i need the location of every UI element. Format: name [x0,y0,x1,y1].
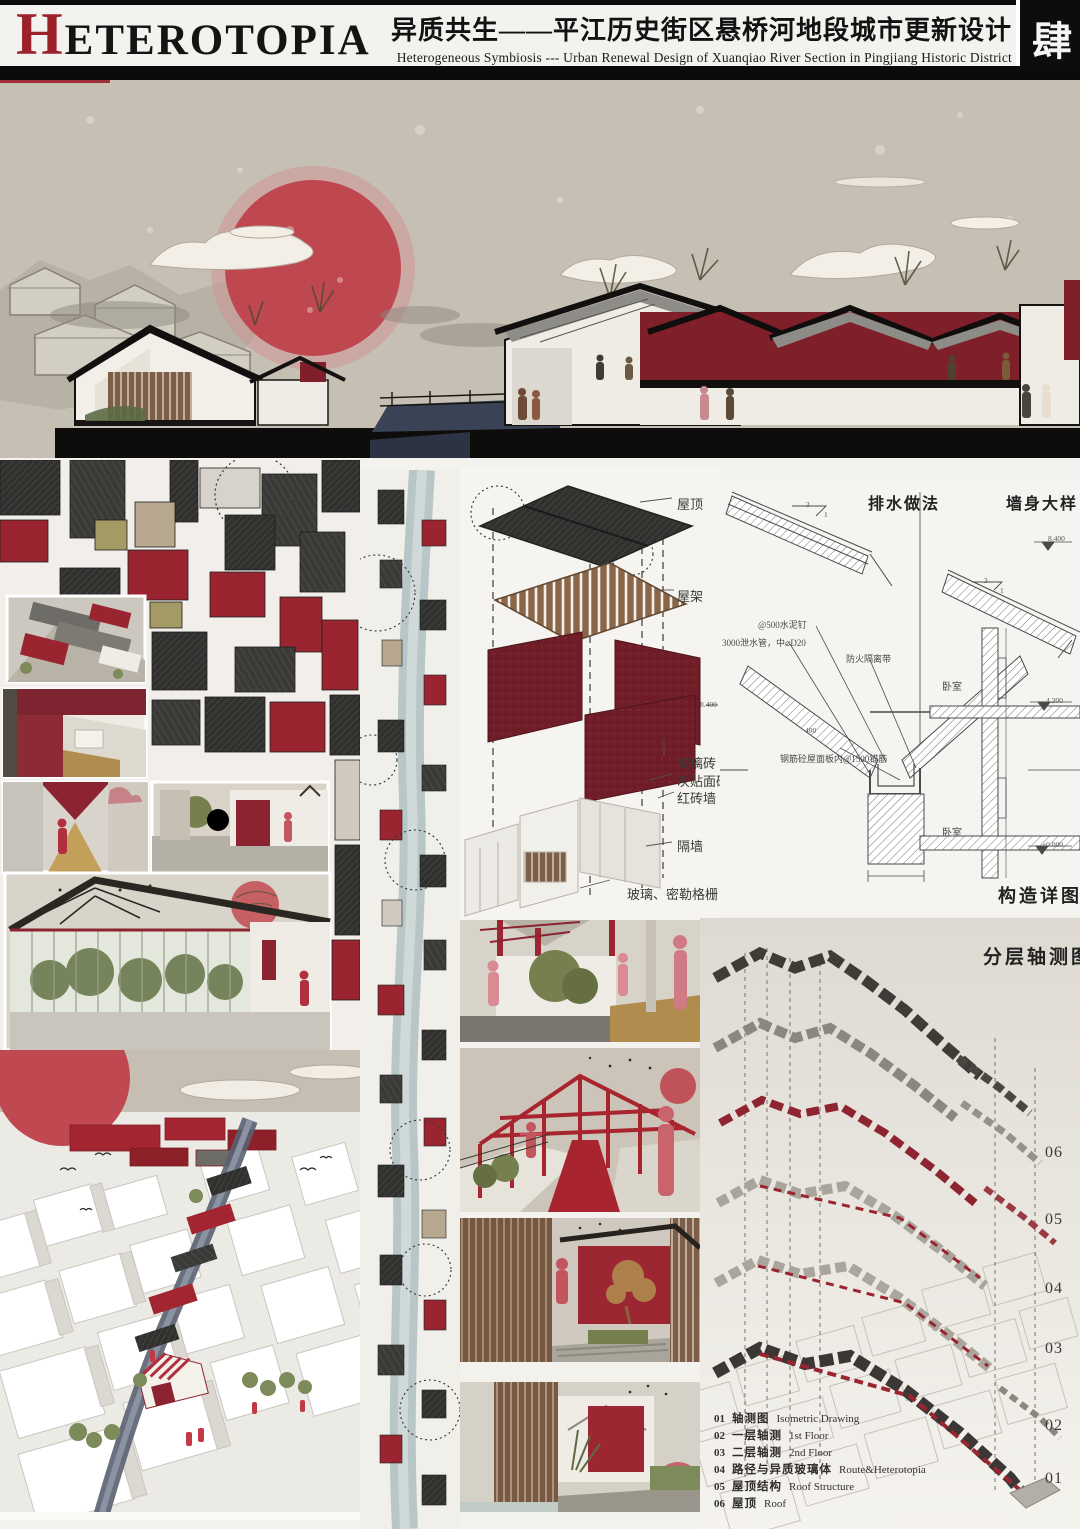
legend-cn: 一层轴测 [732,1427,782,1443]
label-partition: 隔墙 [677,836,703,855]
header-bottom-rule [0,66,1080,80]
layer-number-05: 05 [1045,1211,1063,1229]
label-glass-grille: 玻璃、密勒格栅 [627,884,718,903]
layer-legend: 01 轴测图 Isometric Drawing 02 一层轴测 1st Flo… [714,1410,926,1512]
dim-400: 400 [805,726,816,735]
inset-interior-render [3,782,148,872]
legend-cn: 路径与异质玻璃体 [732,1461,832,1477]
label-roof-frame: 屋架 [677,586,703,605]
legend-num: 02 [714,1430,725,1442]
exploded-elevation-mark: 8.400 [700,700,717,709]
render-pergola [460,1048,710,1212]
legend-row-06: 06 屋顶 Roof [714,1495,926,1512]
legend-en: 2nd Floor [789,1447,832,1459]
slope-mark-b-den: 1 [1000,586,1004,595]
legend-num: 05 [714,1481,725,1493]
legend-row-02: 02 一层轴测 1st Floor [714,1427,926,1444]
inset-courtyard-render [152,782,328,872]
elev-0000: ±0.000 [1042,840,1063,849]
slope-mark-a-den: 1 [824,510,828,519]
ann-anchor-bar: 钢筋砼屋面板内@1500锚筋 [780,752,887,765]
layer-number-06: 06 [1045,1144,1063,1162]
layer-number-02: 02 [1045,1417,1063,1435]
title-chinese: 异质共生——平江历史街区悬桥河地段城市更新设计 [250,10,1012,47]
poster: HETEROTOPIA 异质共生——平江历史街区悬桥河地段城市更新设计 Hete… [0,0,1080,1529]
legend-row-03: 03 二层轴测 2nd Floor [714,1444,926,1461]
wall-detail-title: 墙身大样 [1006,490,1078,514]
drainage-detail-title: 排水做法 [868,490,940,514]
layered-axon-title: 分层轴测图 [983,942,1080,969]
aerial-city-render [0,1050,390,1520]
slope-mark-a-num: 3 [806,500,810,509]
ann-cement-nail: @500水泥钉 [758,618,807,631]
legend-num: 04 [714,1464,725,1476]
elev-4200: 4.200 [1046,696,1063,705]
legend-cn: 二层轴测 [732,1444,782,1460]
label-red-brick-wall: 红砖墙 [677,788,716,807]
axon-plan-collage [0,460,360,1050]
legend-cn: 屋顶结构 [732,1478,782,1494]
render-courtyard [460,920,710,1042]
room-label-2: 卧室 [942,824,962,839]
render-column [460,920,710,1520]
label-glass-brick: 玻璃砖 [677,753,716,772]
construction-details [720,478,1080,915]
legend-row-04: 04 路径与异质玻璃体 Route&Heterotopia [714,1461,926,1478]
ann-fire-belt: 防火隔离带 [846,652,891,665]
page-number-badge: 肆 [1016,0,1080,76]
panorama-section-illustration [0,80,1080,458]
legend-en: Roof Structure [789,1481,854,1493]
legend-en: Isometric Drawing [777,1413,860,1425]
legend-num: 06 [714,1498,725,1510]
legend-en: 1st Floor [789,1430,828,1442]
room-label-1: 卧室 [942,678,962,693]
legend-row-01: 01 轴测图 Isometric Drawing [714,1410,926,1427]
layer-number-01: 01 [1045,1470,1063,1488]
page-number-text: 肆 [1032,9,1072,67]
logo-initial: H [16,4,65,64]
construction-caption: 构造详图 [998,882,1080,908]
label-roof: 屋顶 [677,494,703,513]
legend-num: 03 [714,1447,725,1459]
inset-aerial-render [7,596,145,682]
render-mural-lane [460,1218,710,1362]
header-titles: 异质共生——平江历史街区悬桥河地段城市更新设计 Heterogeneous Sy… [250,10,1012,66]
render-slat-court [460,1366,710,1512]
river-masterplan-strip [360,470,460,1529]
inset-corridor-render [3,689,146,777]
title-english: Heterogeneous Symbiosis --- Urban Renewa… [250,50,1012,66]
legend-row-05: 05 屋顶结构 Roof Structure [714,1478,926,1495]
ann-drain-pipe: 3000泄水管，中⌀D20 [722,636,806,649]
legend-en: Roof [764,1498,786,1510]
layer-number-03: 03 [1045,1340,1063,1358]
layer-number-04: 04 [1045,1280,1063,1298]
elev-8400: 8.400 [1048,534,1065,543]
legend-cn: 屋顶 [732,1495,757,1511]
legend-num: 01 [714,1413,725,1425]
legend-cn: 轴测图 [732,1410,770,1426]
slope-mark-b-num: 3 [984,576,988,585]
glass-hall-render [5,873,330,1050]
legend-en: Route&Heterotopia [839,1464,926,1476]
